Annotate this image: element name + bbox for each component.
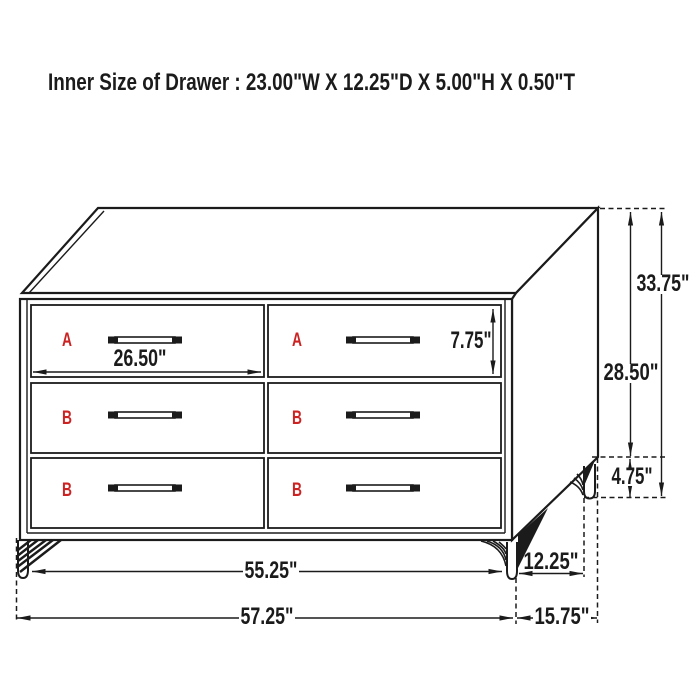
drawer-handle xyxy=(346,412,420,419)
drawer-handle xyxy=(346,485,420,492)
drawer-label-top-left: A xyxy=(62,330,72,351)
furniture-dimension-diagram: Inner Size of Drawer : 23.00"W X 12.25"D… xyxy=(0,0,700,700)
top-panel-surface xyxy=(22,208,598,293)
dim-label-overall-height: 33.75" xyxy=(637,270,690,297)
drawer-label-middle-left: B xyxy=(62,408,72,429)
drawer-handle xyxy=(108,337,182,344)
dresser-drawing: A A B B B B xyxy=(18,208,598,579)
page-title: Inner Size of Drawer : 23.00"W X 12.25"D… xyxy=(48,69,575,96)
dim-label-case-height: 28.50" xyxy=(604,359,659,386)
drawer-label-bottom-left: B xyxy=(62,480,72,501)
drawer-handle xyxy=(108,412,182,419)
dim-label-leg-inset: 12.25" xyxy=(524,548,579,575)
dim-label-leg-height: 4.75" xyxy=(612,463,653,490)
diagram-canvas: Inner Size of Drawer : 23.00"W X 12.25"D… xyxy=(0,0,700,700)
dim-label-between-legs: 55.25" xyxy=(245,557,298,584)
drawer-handle xyxy=(346,337,420,344)
drawer-label-bottom-right: B xyxy=(292,480,302,501)
drawer-label-middle-right: B xyxy=(292,408,302,429)
dim-label-drawer-width: 26.50" xyxy=(114,345,167,372)
drawer-front-bottom-right xyxy=(268,458,501,528)
drawer-label-top-right: A xyxy=(292,330,302,351)
drawer-handle xyxy=(108,485,182,492)
dim-label-overall-depth: 15.75" xyxy=(535,603,590,630)
top-panel xyxy=(22,208,598,293)
dim-label-drawer-height: 7.75" xyxy=(451,327,492,354)
dim-label-overall-width: 57.25" xyxy=(241,603,294,630)
